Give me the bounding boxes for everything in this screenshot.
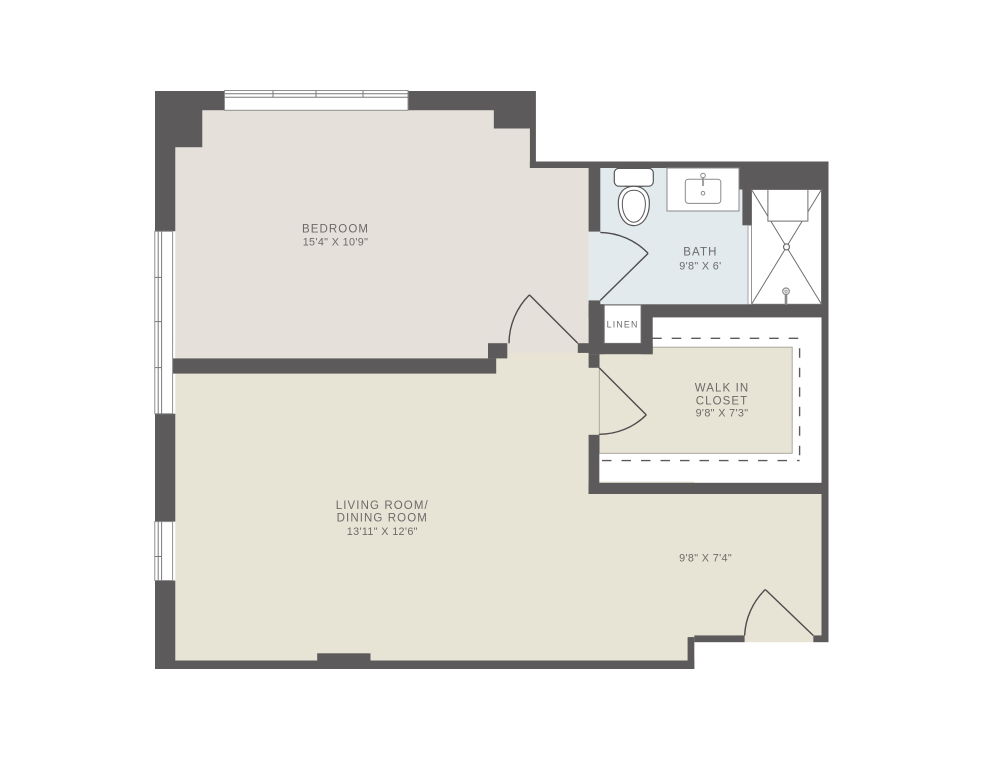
svg-text:BEDROOM: BEDROOM bbox=[302, 223, 369, 235]
svg-text:15'4" X 10'9": 15'4" X 10'9" bbox=[303, 237, 369, 249]
svg-text:WALK IN: WALK IN bbox=[695, 382, 750, 394]
svg-text:9'8" X 7'3": 9'8" X 7'3" bbox=[696, 408, 749, 420]
svg-text:LINEN: LINEN bbox=[607, 320, 639, 330]
svg-text:BATH: BATH bbox=[683, 247, 717, 259]
svg-text:LIVING ROOM/: LIVING ROOM/ bbox=[336, 500, 429, 512]
svg-text:CLOSET: CLOSET bbox=[696, 396, 749, 408]
svg-text:9'8" X 7'4": 9'8" X 7'4" bbox=[679, 553, 732, 565]
svg-text:9'8" X 6': 9'8" X 6' bbox=[679, 260, 721, 272]
svg-text:13'11" X 12'6": 13'11" X 12'6" bbox=[347, 526, 418, 538]
svg-text:DINING ROOM: DINING ROOM bbox=[337, 512, 428, 524]
